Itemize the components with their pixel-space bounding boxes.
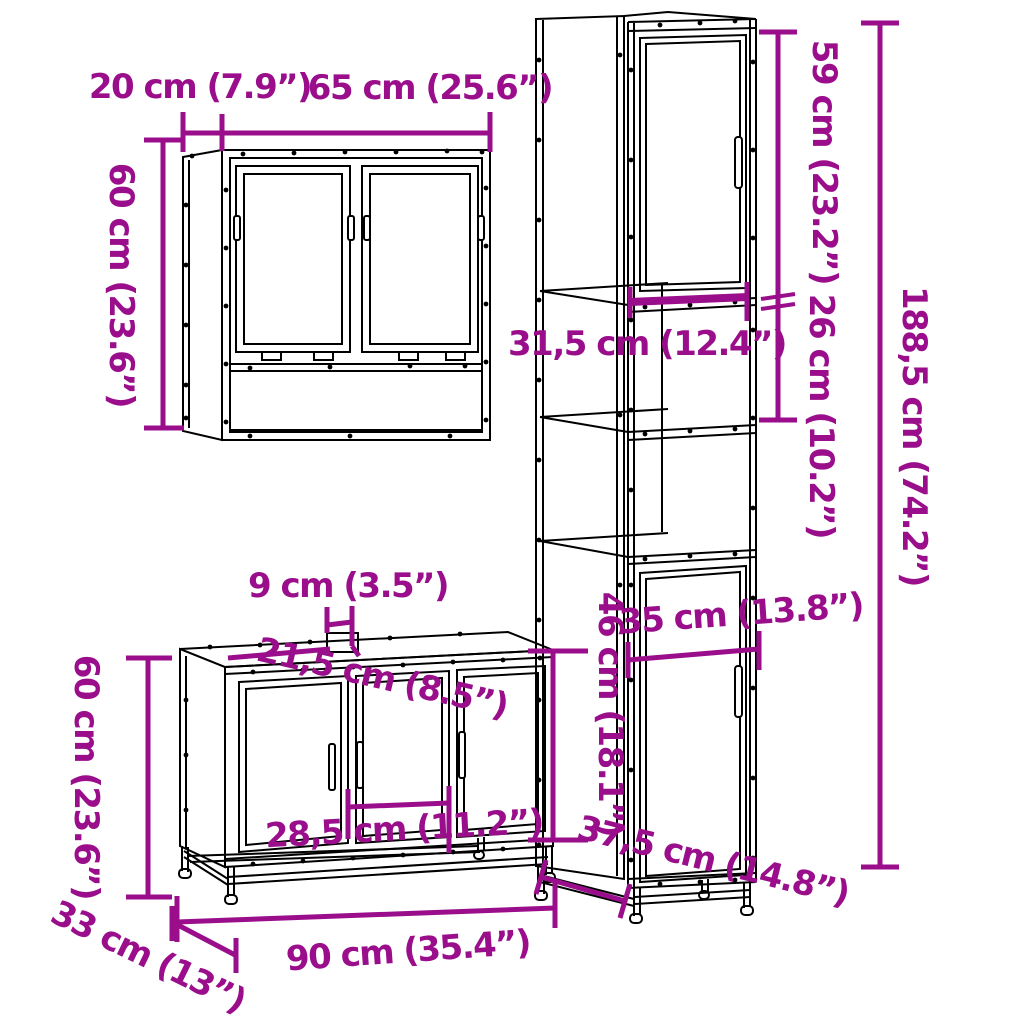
dim-sink-height-label: 60 cm (23.6”) <box>69 655 103 899</box>
dim-mirror-width-label: 65 cm (25.6”) <box>308 71 552 105</box>
furniture-drawing <box>0 0 1024 1024</box>
dim-tall-inner-width-label: 31,5 cm (12.4”) <box>508 327 786 361</box>
dim-mirror-height-line <box>144 140 184 428</box>
tall-cabinet-drawing <box>535 12 756 923</box>
dim-tall-lower-door-height-label: 46 cm (18.1”) <box>593 592 627 836</box>
dim-tall-total-height-label: 188,5 cm (74.2”) <box>897 286 931 586</box>
dim-sink-tap-gap-label: 9 cm (3.5”) <box>248 569 448 603</box>
dim-mirror-height-label: 60 cm (23.6”) <box>104 163 138 407</box>
dim-mirror-width-line <box>183 112 490 152</box>
dim-sink-height-line <box>126 658 172 897</box>
mirror-cabinet-drawing <box>183 149 490 440</box>
dimension-diagram: 20 cm (7.9”) 65 cm (25.6”) 60 cm (23.6”)… <box>0 0 1024 1024</box>
dim-mirror-depth-label: 20 cm (7.9”) <box>89 70 311 104</box>
dim-tall-open-section-height-label: 26 cm (10.2”) <box>804 294 838 538</box>
dim-tall-upper-door-height-label: 59 cm (23.2”) <box>807 40 841 284</box>
